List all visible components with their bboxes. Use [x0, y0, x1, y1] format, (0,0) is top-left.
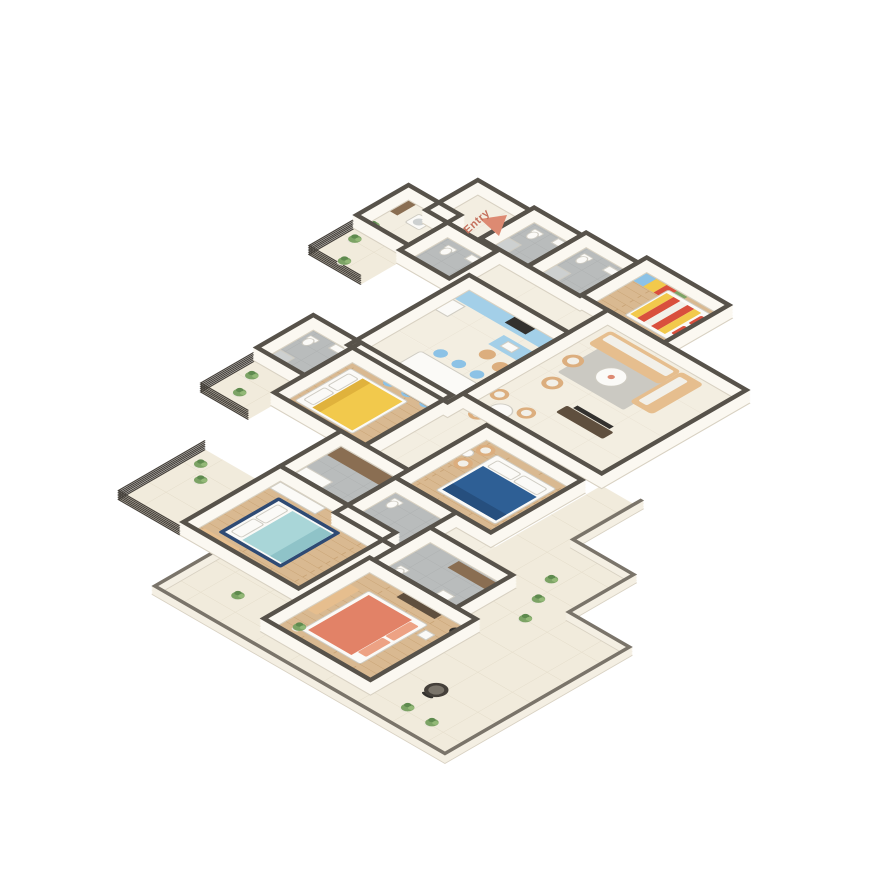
floor-plan-canvas: Entry: [0, 0, 870, 870]
floor-plan-3d-render: Entry: [0, 0, 870, 870]
